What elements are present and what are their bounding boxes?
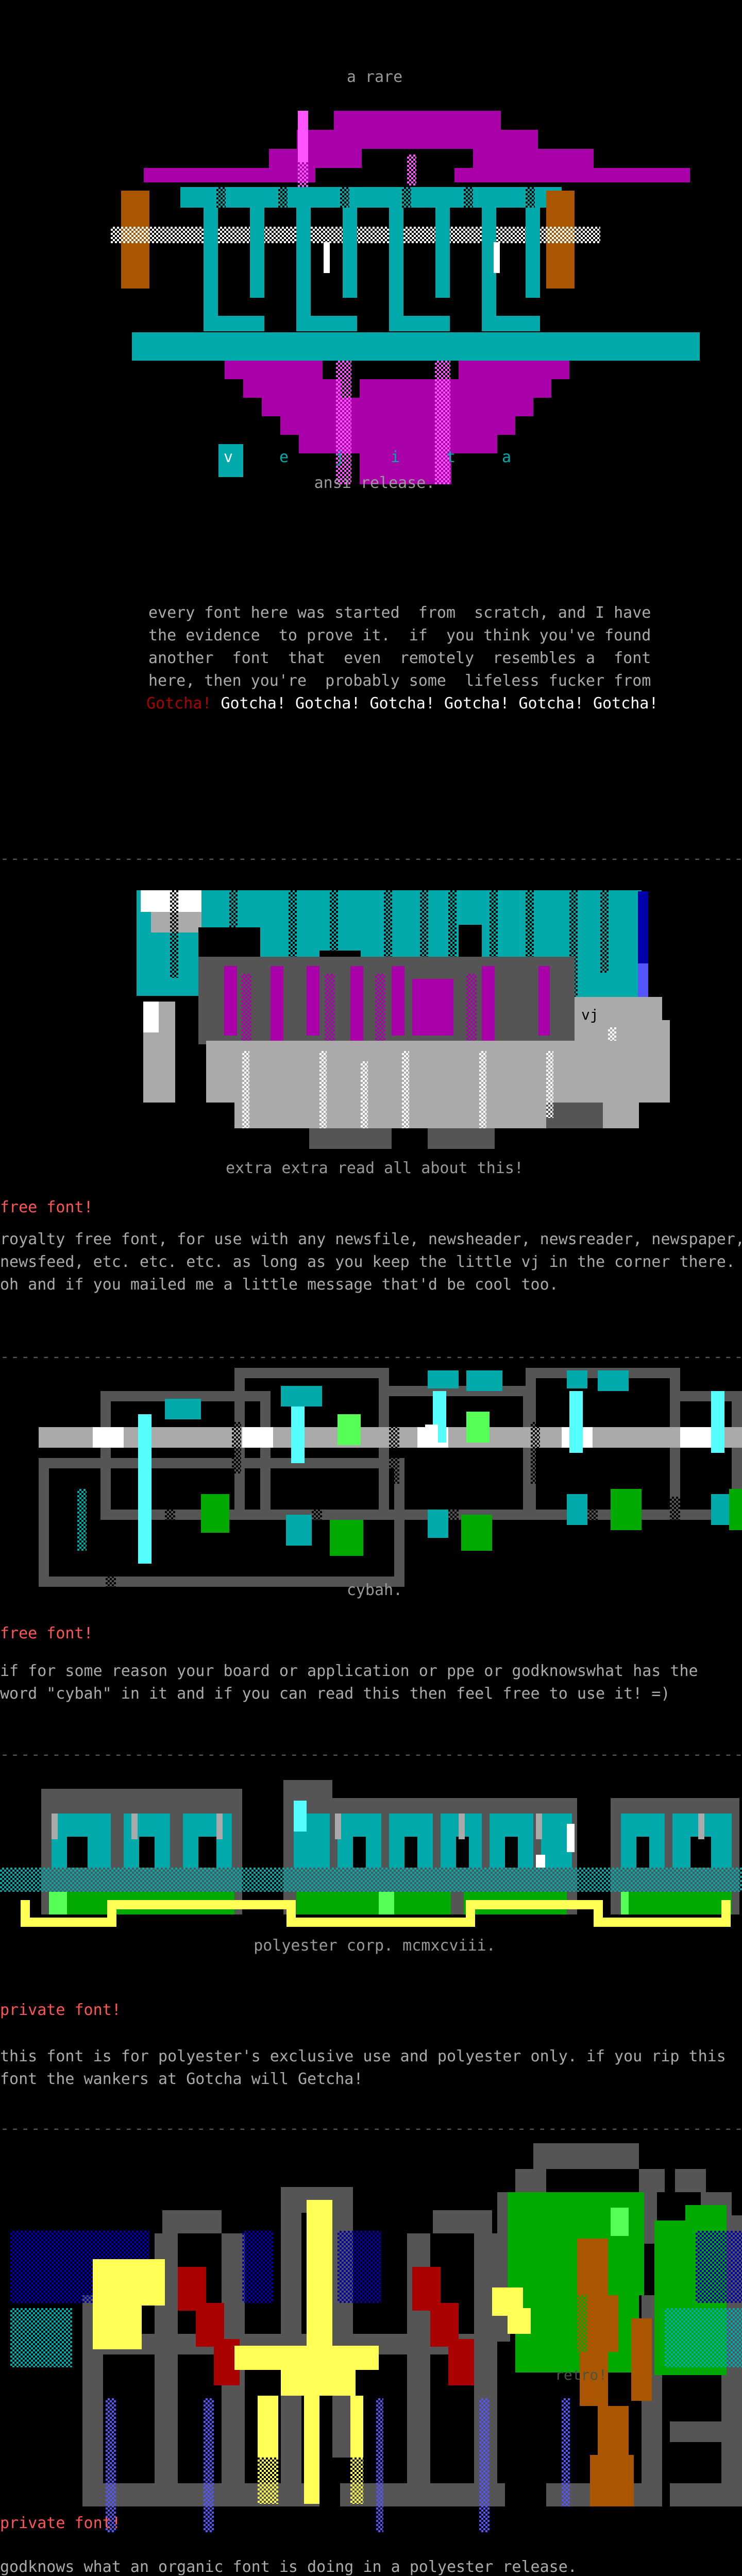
- news-corner-tag: vj: [581, 1004, 599, 1026]
- vejita-art-block: [144, 168, 315, 182]
- cybah-art-block: [291, 1401, 305, 1463]
- news-art-block: [198, 957, 575, 1044]
- news-art-block: [309, 1128, 392, 1149]
- logo-letter-j: j: [335, 446, 344, 469]
- cybah-art-block: [389, 1422, 399, 1484]
- organic-art-block: [533, 2143, 639, 2169]
- vejita-art-block: [389, 316, 450, 331]
- news-art-block: [271, 966, 283, 1043]
- vejita-art-block: [343, 208, 357, 298]
- organic-art-block: [515, 2169, 546, 2192]
- organic-art-block: [479, 2398, 490, 2532]
- polyester-art-block: [475, 1900, 594, 1909]
- vejita-art-block: [204, 208, 218, 331]
- vejita-art-block: [526, 208, 540, 298]
- cybah-body-line: if for some reason your board or applica…: [0, 1660, 698, 1683]
- polyester-art-block: [67, 1837, 88, 1868]
- news-art-block: [412, 979, 453, 1036]
- news-art-block: [319, 1051, 327, 1128]
- cybah-art-block: [338, 1414, 361, 1445]
- organic-art-block: [587, 2295, 618, 2352]
- organic-art-block: [577, 2295, 587, 2352]
- news-art-block: [206, 1041, 670, 1103]
- cybah-art-block: [232, 1422, 241, 1473]
- news-art-block: [241, 974, 251, 1041]
- separator: ----------------------------------------…: [0, 2117, 742, 2140]
- polyester-art-block: [698, 1814, 704, 1839]
- polyester-body-line: this font is for polyester's exclusive u…: [0, 2045, 726, 2068]
- organic-art-block: [577, 2239, 608, 2295]
- polyester-art-block: [49, 1892, 67, 1914]
- vejita-art-block: [243, 379, 341, 398]
- organic-art-block: [350, 2458, 363, 2504]
- vejita-art-block: [225, 361, 323, 379]
- polyester-caption: polyester corp. mcmxcviii.: [0, 1935, 742, 1957]
- polyester-art-block: [21, 1900, 30, 1927]
- polyester-art-block: [594, 1900, 603, 1927]
- separator: ----------------------------------------…: [0, 1346, 742, 1368]
- logo-letter-i: i: [391, 446, 400, 469]
- polyester-art-block: [296, 1892, 451, 1914]
- organic-art-block: [307, 2200, 332, 2370]
- cybah-art-block: [77, 1489, 87, 1551]
- polyester-art-block: [286, 1900, 296, 1927]
- polyester-art-block: [353, 1837, 366, 1868]
- gotcha-line: Gotcha! Gotcha! Gotcha! Gotcha! Gotcha! …: [146, 692, 658, 715]
- ansi-release-canvas: a rare v e j i t a ansi release. every f…: [0, 0, 742, 2576]
- polyester-art-block: [623, 1892, 732, 1914]
- news-art-block: [546, 1051, 553, 1118]
- organic-art-block: [670, 2483, 742, 2506]
- news-art-block: [242, 1051, 249, 1128]
- polyester-art-block: [690, 1837, 711, 1868]
- vejita-art-block: [482, 316, 540, 331]
- organic-art-block: [639, 2169, 665, 2192]
- cybah-art-block: [428, 1510, 448, 1538]
- cybah-art-block: [201, 1494, 229, 1533]
- polyester-body-line: font the wankers at Gotcha will Getcha!: [0, 2068, 363, 2091]
- cybah-art-block: [567, 1494, 587, 1525]
- polyester-art-block: [30, 1918, 107, 1927]
- organic-art-block: [93, 2306, 142, 2349]
- cybah-art-block: [242, 1427, 273, 1448]
- news-body-line: newsfeed, etc. etc. etc. as long as you …: [0, 1251, 735, 1274]
- polyester-art-block: [131, 1814, 138, 1839]
- organic-body-line: godknows what an organic font is doing i…: [0, 2556, 577, 2576]
- polyester-art-block: [283, 1780, 332, 1798]
- cybah-art-block: [330, 1520, 363, 1556]
- cybah-art-block: [93, 1427, 124, 1448]
- organic-art-block: [611, 2208, 629, 2236]
- vejita-art-block: [269, 149, 362, 168]
- news-art-block: [289, 890, 297, 968]
- vejita-art-block: [180, 187, 562, 208]
- polyester-art-block: [536, 1855, 545, 1868]
- polyester-art-block: [198, 1837, 216, 1868]
- cybah-label: free font!: [0, 1622, 93, 1645]
- news-body-line: royalty free font, for use with any news…: [0, 1228, 742, 1251]
- separator: ----------------------------------------…: [0, 848, 742, 870]
- gotcha-rest: Gotcha! Gotcha! Gotcha! Gotcha! Gotcha! …: [211, 694, 658, 713]
- cybah-art-block: [711, 1494, 732, 1525]
- polyester-art-block: [216, 1814, 223, 1839]
- news-art-block: [375, 974, 385, 1041]
- vejita-art-block: [298, 111, 308, 162]
- cybah-art-block: [587, 1484, 598, 1556]
- polyester-art-block: [621, 1892, 629, 1914]
- logo-letter-a: a: [502, 446, 511, 469]
- news-art-block: [600, 890, 609, 973]
- vejita-art-block: [442, 379, 551, 398]
- organic-art-block: [258, 2396, 278, 2458]
- polyester-art-block: [116, 1900, 286, 1909]
- organic-art-block: [631, 2318, 652, 2401]
- organic-art-block: [598, 2406, 629, 2455]
- cybah-art-block: [312, 1497, 322, 1556]
- intro-line: the evidence to prove it. if you think y…: [148, 624, 651, 647]
- polyester-art-block: [456, 1837, 469, 1868]
- polyester-art-block: [0, 1868, 742, 1892]
- polyester-label: private font!: [0, 1999, 121, 2022]
- cybah-art-block: [680, 1427, 711, 1448]
- polyester-art-block: [107, 1900, 116, 1927]
- organic-art-block: [562, 2398, 570, 2506]
- news-art-block: [538, 966, 550, 1036]
- news-art-block: [546, 1103, 603, 1128]
- cybah-art-block: [165, 1497, 175, 1558]
- polyester-art-block: [536, 1814, 542, 1839]
- news-art-block: [224, 966, 237, 1036]
- organic-art-block: [304, 2396, 319, 2504]
- organic-art-block: [448, 2339, 474, 2385]
- vejita-art-block: [334, 111, 501, 130]
- polyester-art-block: [296, 1918, 466, 1927]
- cybah-caption: cybah.: [0, 1579, 742, 1602]
- organic-art-block: [696, 2231, 742, 2303]
- polyester-art-block: [404, 1837, 417, 1868]
- cybah-art-block: [165, 1399, 201, 1419]
- news-body-line: oh and if you mailed me a little message…: [0, 1274, 559, 1296]
- news-caption: extra extra read all about this!: [0, 1157, 742, 1180]
- logo-letter-t: t: [446, 446, 456, 469]
- vejita-art-block: [407, 155, 416, 185]
- organic-art-block: [433, 2210, 492, 2233]
- cybah-art-block: [461, 1515, 492, 1551]
- polyester-art-block: [379, 1892, 394, 1914]
- organic-art-block: [508, 2308, 531, 2334]
- organic-art-block: [258, 2458, 278, 2504]
- vejita-art-block: [296, 208, 311, 331]
- news-art-block: [482, 966, 495, 1043]
- organic-art-block: [162, 2210, 222, 2233]
- news-art-block: [638, 891, 648, 963]
- cybah-art-block: [448, 1479, 459, 1546]
- news-art-block: [350, 966, 363, 1043]
- polyester-art-block: [636, 1837, 649, 1868]
- news-art-block: [143, 1002, 159, 1032]
- cybah-art-block: [428, 1370, 459, 1388]
- cybah-art-block: [466, 1412, 490, 1443]
- polyester-art-block: [603, 1918, 721, 1927]
- polyester-art-block: [505, 1837, 518, 1868]
- release-line: ansi release.: [0, 472, 742, 495]
- vejita-art-block: [324, 242, 330, 273]
- polyester-art-block: [294, 1801, 307, 1832]
- polyester-art-block: [335, 1814, 341, 1839]
- organic-art-block: [376, 2398, 383, 2532]
- intro-line: every font here was started from scratch…: [148, 602, 651, 624]
- news-label: free font!: [0, 1196, 93, 1219]
- cybah-art-block: [466, 1370, 502, 1391]
- organic-art-block: [338, 2231, 381, 2303]
- organic-art-block: [234, 2346, 379, 2370]
- organic-art-block: [590, 2455, 634, 2506]
- news-art-block: [428, 1128, 495, 1149]
- polyester-art-block: [139, 1837, 155, 1868]
- vejita-art-block: [454, 168, 690, 182]
- polyester-art-block: [52, 1814, 58, 1839]
- polyester-art-block: [567, 1824, 575, 1852]
- vejita-art-block: [464, 187, 473, 231]
- cybah-art-block: [729, 1489, 742, 1530]
- vejita-art-block: [297, 130, 538, 149]
- news-art-block: [170, 890, 178, 978]
- logo-letter-v: v: [224, 446, 233, 469]
- cybah-art-block: [598, 1370, 629, 1391]
- logo-letter-e: e: [279, 446, 289, 469]
- cybah-art-block: [711, 1391, 724, 1453]
- cybah-art-block: [567, 1370, 587, 1388]
- organic-label: private font!: [0, 2512, 121, 2535]
- news-art-block: [402, 1051, 409, 1128]
- vejita-art-block: [459, 361, 569, 379]
- cybah-art-block: [286, 1515, 312, 1546]
- vejita-art-block: [204, 316, 264, 331]
- news-art-block: [490, 890, 498, 968]
- news-art-block: [639, 1020, 670, 1103]
- organic-art-block: [665, 2308, 742, 2367]
- polyester-art-block: [721, 1900, 731, 1927]
- cybah-art-block: [425, 1425, 438, 1448]
- cybah-art-block: [138, 1414, 151, 1564]
- organic-art-block: [281, 2370, 356, 2396]
- intro-line: another font that even remotely resemble…: [148, 647, 651, 670]
- news-art-block: [325, 974, 335, 1041]
- vejita-art-block: [250, 208, 264, 298]
- cybah-art-block: [611, 1489, 642, 1530]
- organic-art-block: [82, 2483, 319, 2506]
- vejita-art-block: [435, 208, 450, 298]
- news-art-block: [392, 966, 404, 1036]
- intro-line: here, then you're probably some lifeless…: [148, 670, 651, 692]
- organic-art-block: [350, 2396, 363, 2458]
- polyester-art-block: [466, 1900, 475, 1927]
- vejita-art-block: [389, 208, 403, 331]
- organic-art-block: [93, 2259, 165, 2306]
- cybah-art-block: [531, 1422, 540, 1484]
- news-art-block: [466, 974, 477, 1041]
- organic-art-block: [10, 2308, 72, 2367]
- organic-art-block: [675, 2169, 706, 2192]
- tagline: a rare: [0, 66, 742, 89]
- organic-leaf-tag: retro!: [555, 2364, 607, 2386]
- gotcha-first: Gotcha!: [146, 694, 211, 713]
- cybah-art-block: [569, 1391, 583, 1453]
- organic-art-block: [204, 2398, 214, 2532]
- news-art-block: [307, 966, 319, 1036]
- vejita-art-block: [296, 316, 357, 331]
- vejita-art-block: [132, 332, 700, 361]
- cybah-art-block: [281, 1386, 322, 1406]
- polyester-art-block: [459, 1814, 465, 1839]
- news-art-block: [361, 1061, 368, 1128]
- vejita-art-block: [494, 242, 500, 273]
- news-art-block: [479, 1051, 486, 1128]
- organic-art-block: [242, 2231, 273, 2303]
- cybah-body-line: word "cybah" in it and if you can read t…: [0, 1683, 670, 1705]
- vejita-art-block: [473, 149, 594, 168]
- separator: ----------------------------------------…: [0, 1743, 742, 1766]
